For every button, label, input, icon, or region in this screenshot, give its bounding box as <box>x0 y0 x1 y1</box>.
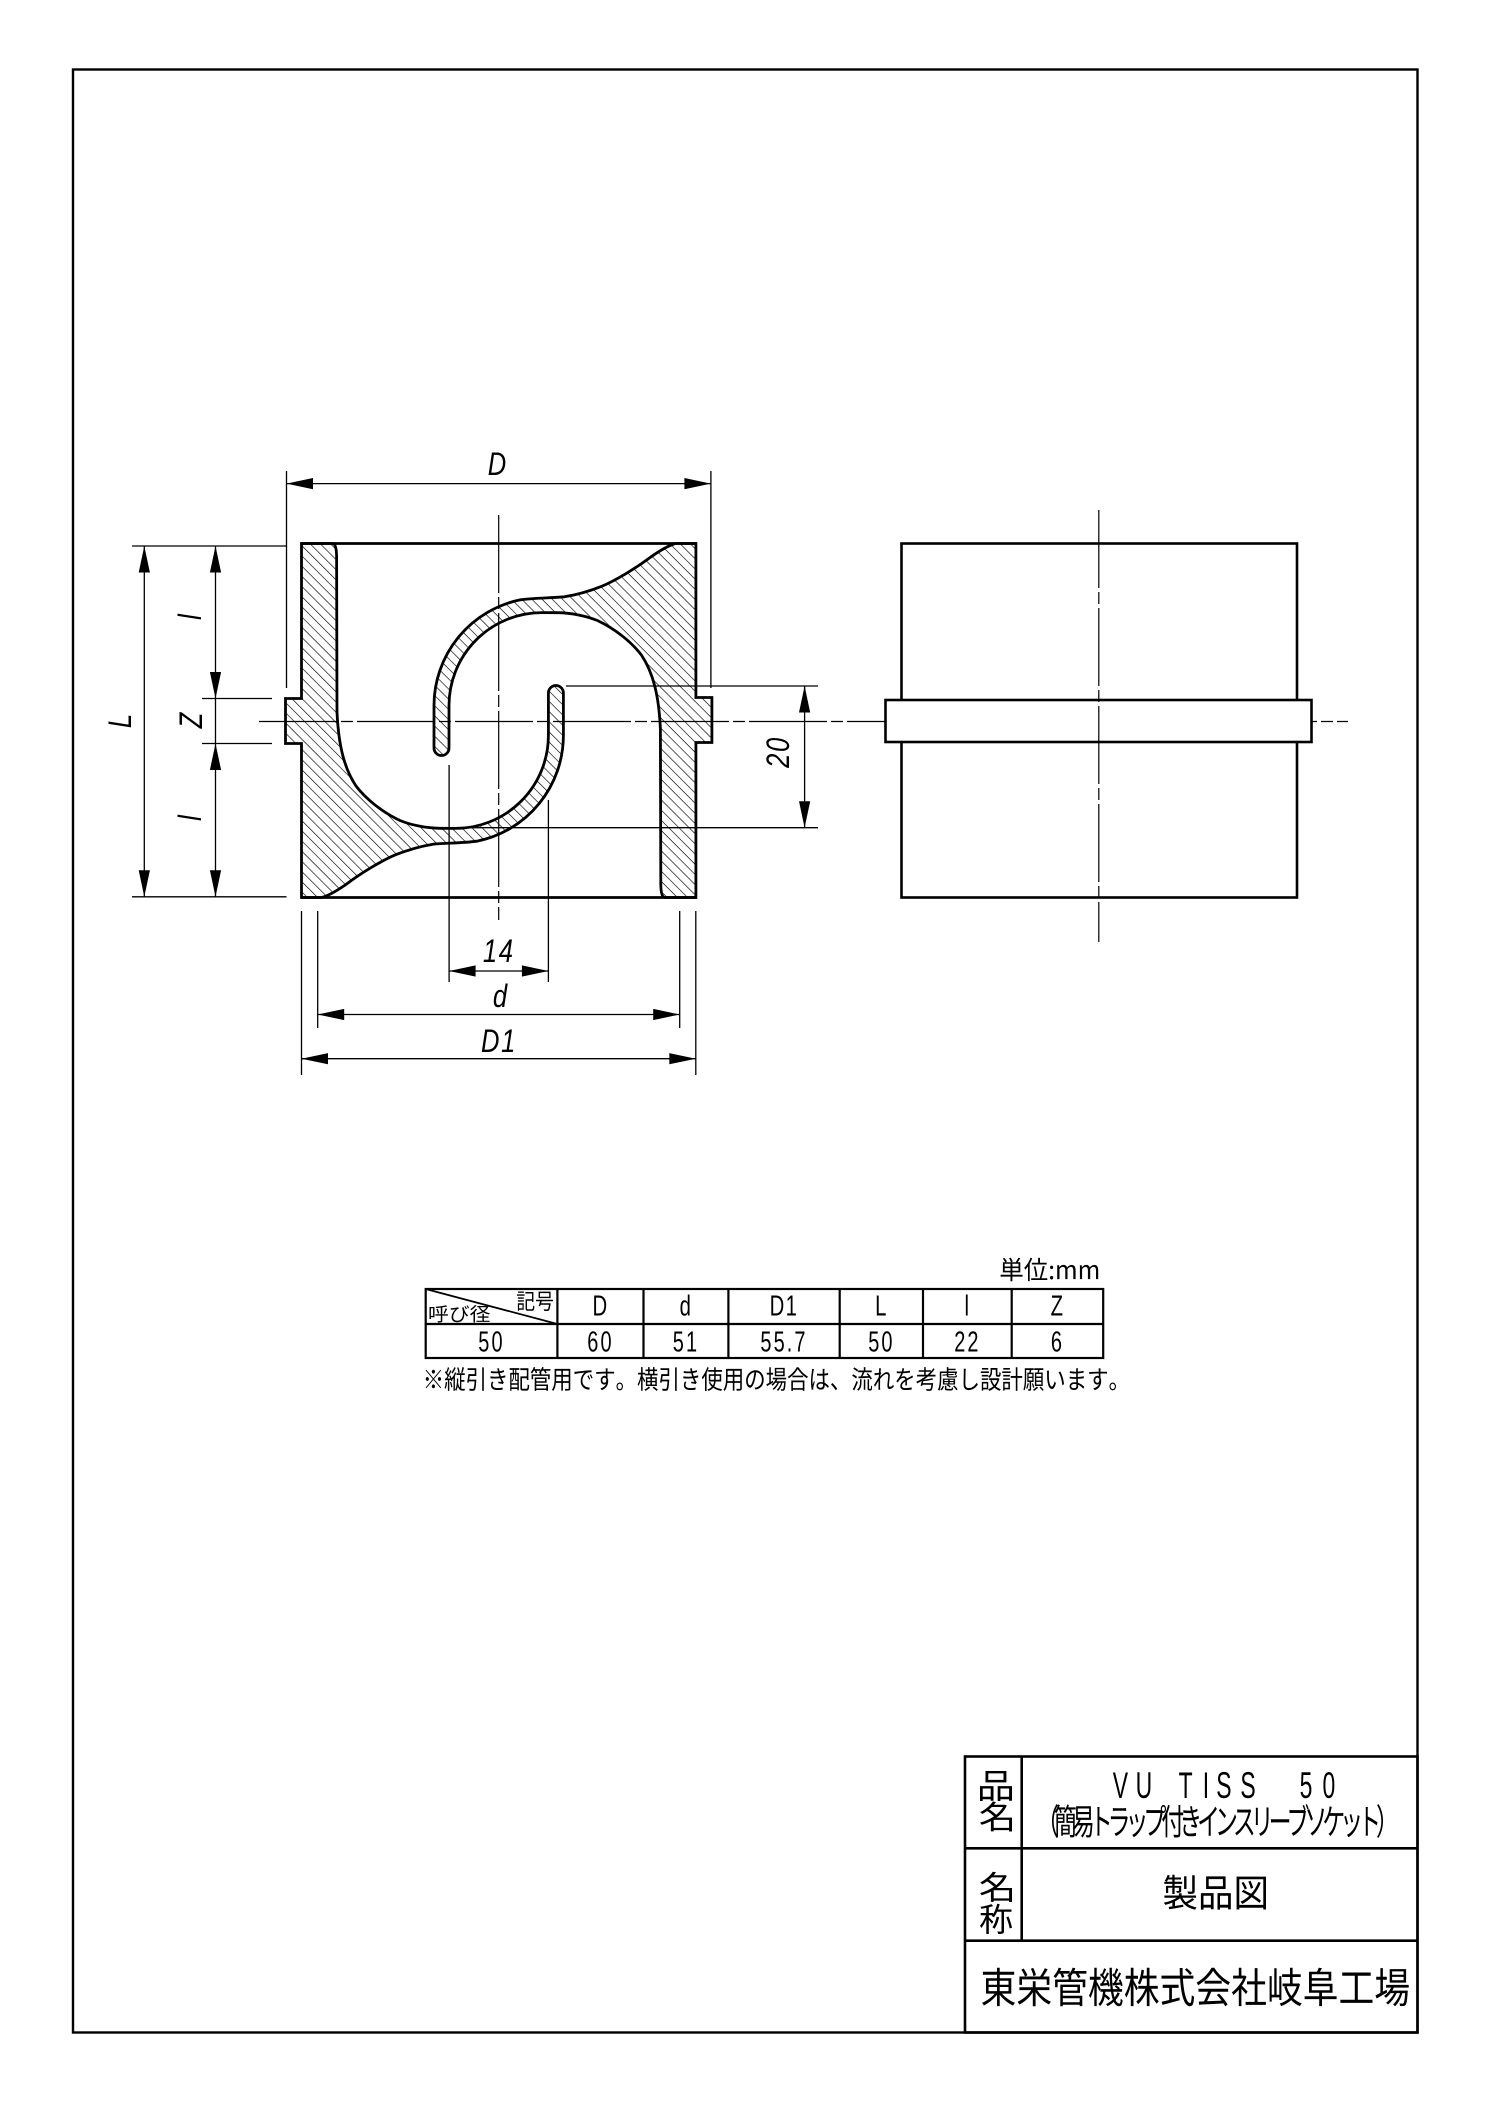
svg-text:Z: Z <box>1051 1290 1065 1322</box>
svg-text:50: 50 <box>478 1327 504 1358</box>
svg-text:U: U <box>1136 1764 1153 1806</box>
svg-text:22: 22 <box>954 1327 980 1358</box>
svg-text:d: d <box>680 1290 693 1322</box>
svg-text:D1: D1 <box>770 1290 799 1322</box>
svg-text:51: 51 <box>673 1327 699 1358</box>
svg-text:V: V <box>1113 1764 1129 1806</box>
svg-text:6: 6 <box>1051 1327 1064 1358</box>
svg-text:20: 20 <box>761 736 796 769</box>
svg-text:60: 60 <box>587 1327 613 1358</box>
svg-text:55.7: 55.7 <box>760 1327 807 1358</box>
svg-text:D1: D1 <box>481 1024 517 1059</box>
svg-text:D: D <box>488 447 506 482</box>
svg-text:l: l <box>964 1290 970 1322</box>
svg-text:L: L <box>103 714 138 728</box>
svg-text:S: S <box>1216 1764 1231 1806</box>
svg-text:50: 50 <box>868 1327 894 1358</box>
svg-text:d: d <box>493 979 508 1014</box>
svg-text:Z: Z <box>174 712 209 730</box>
svg-text:S: S <box>1240 1764 1255 1806</box>
svg-text:L: L <box>875 1290 888 1322</box>
svg-text:I: I <box>1203 1764 1209 1806</box>
svg-text:5: 5 <box>1300 1764 1313 1806</box>
svg-text:D: D <box>592 1290 608 1322</box>
svg-text:0: 0 <box>1323 1764 1336 1806</box>
svg-text:T: T <box>1179 1764 1193 1806</box>
svg-text:14: 14 <box>483 934 515 969</box>
